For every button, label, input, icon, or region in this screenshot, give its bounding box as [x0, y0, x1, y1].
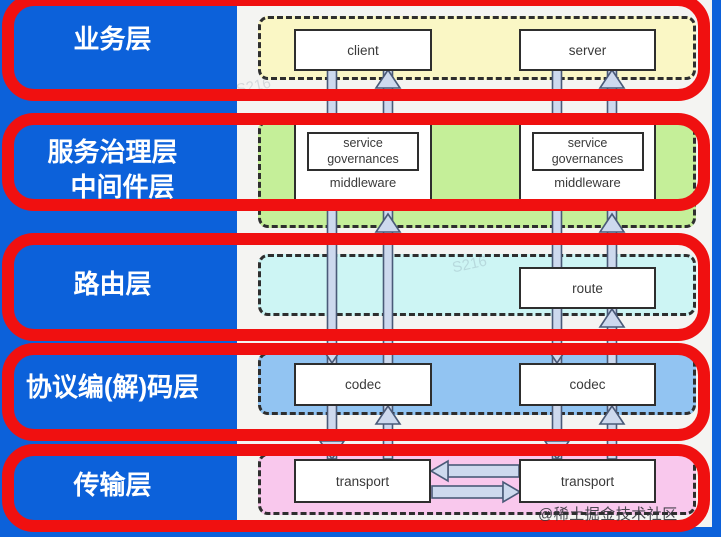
layer-label-codec: 协议编(解)码层	[0, 372, 225, 402]
architecture-diagram: S216 S216 S216 client server service gov…	[0, 0, 721, 537]
layer-label-governance-line1: 服务治理层	[0, 137, 225, 167]
arrowhead-up-governance-right	[600, 214, 624, 232]
layer-label-transport: 传输层	[0, 470, 225, 500]
signature-watermark: @稀土掘金技术社区	[538, 503, 678, 524]
layer-label-governance-line2: 中间件层	[10, 172, 235, 202]
layer-label-business: 业务层	[0, 24, 225, 54]
layer-label-routing: 路由层	[0, 269, 225, 299]
arrowhead-up-governance-left	[376, 214, 400, 232]
